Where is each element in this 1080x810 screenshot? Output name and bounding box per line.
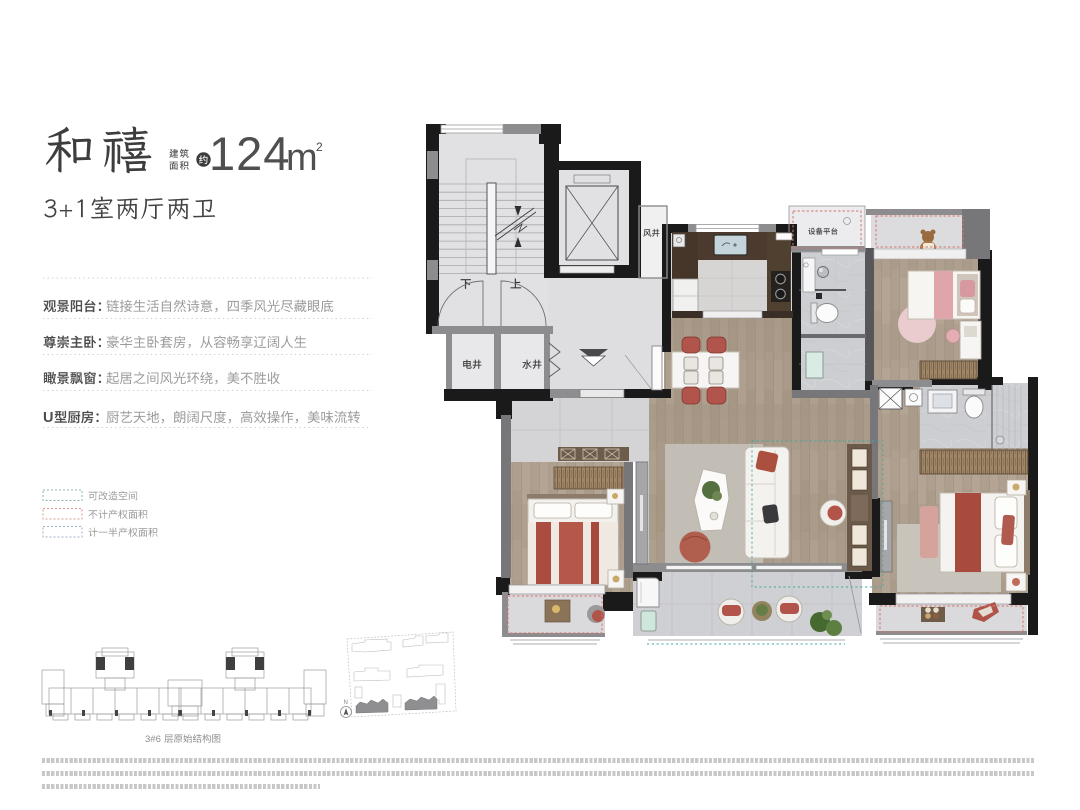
svg-text:3#6: 3#6	[145, 734, 161, 745]
svg-text:124: 124	[209, 127, 290, 180]
svg-text:N: N	[344, 700, 348, 706]
svg-text:2: 2	[316, 140, 323, 154]
svg-text:U: U	[43, 410, 53, 426]
svg-text:m: m	[286, 137, 318, 179]
